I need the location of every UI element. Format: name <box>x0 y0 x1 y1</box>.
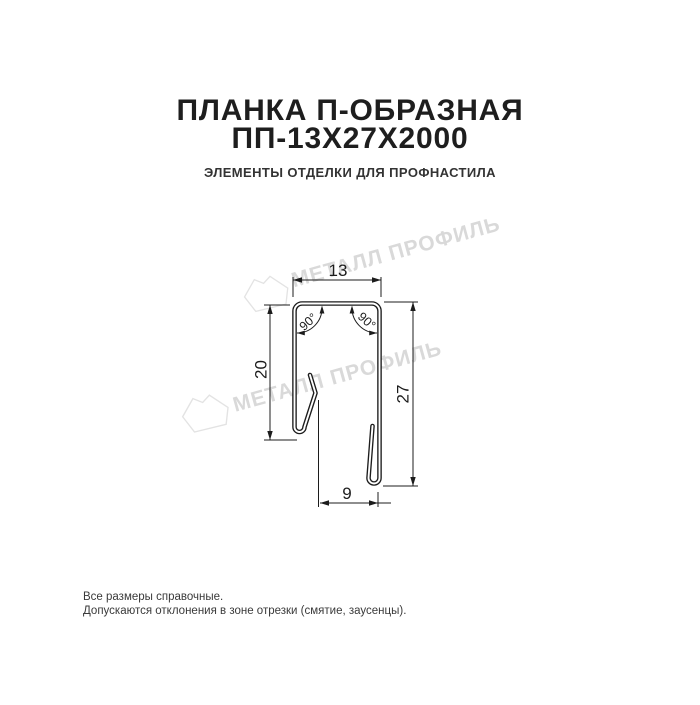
dim-label-right-height: 27 <box>394 385 413 404</box>
watermark-1: МЕТАЛЛ ПРОФИЛЬ <box>241 212 506 314</box>
angle-left: 90° <box>297 306 325 336</box>
angle-label-right: 90° <box>355 310 378 333</box>
dimension-right-height: 27 <box>383 302 418 486</box>
dim-label-top-width: 13 <box>329 261 348 280</box>
dim-label-left-height: 20 <box>252 360 271 379</box>
dimension-left-height: 20 <box>252 305 298 440</box>
angle-label-left: 90° <box>297 311 320 334</box>
footer-notes: Все размеры справочные. Допускаются откл… <box>83 590 406 618</box>
metall-profil-logo-icon <box>179 390 232 435</box>
footer-note-line1: Все размеры справочные. <box>83 590 406 604</box>
dim-label-bottom-width: 9 <box>342 484 351 503</box>
footer-note-line2: Допускаются отклонения в зоне отрезки (с… <box>83 604 406 618</box>
angle-right: 90° <box>350 306 379 336</box>
metall-profil-logo-icon <box>241 272 292 315</box>
